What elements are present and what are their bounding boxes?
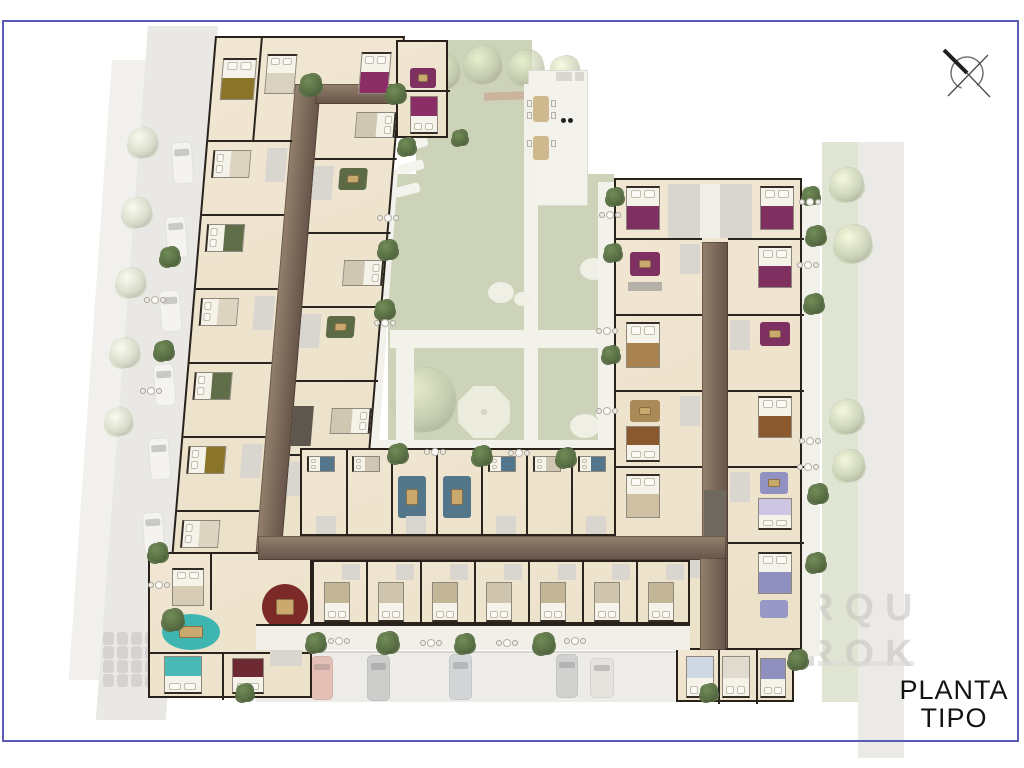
bistro-table [799, 461, 817, 473]
bed [307, 456, 335, 472]
plan-title-line1: PLANTA [894, 676, 1014, 704]
bed [342, 260, 384, 286]
tree-icon [604, 244, 622, 262]
tree-icon [606, 188, 624, 206]
block [366, 562, 368, 626]
rug [630, 400, 660, 422]
tree-icon [830, 400, 864, 434]
block [728, 238, 804, 240]
rug [410, 68, 436, 88]
block [202, 214, 284, 216]
block [575, 72, 584, 81]
block [636, 562, 638, 626]
bed [432, 582, 458, 622]
car [148, 437, 172, 480]
block [316, 516, 336, 534]
block [527, 100, 532, 107]
block [189, 362, 271, 364]
bottom-unit-band [256, 560, 690, 624]
tree-icon [388, 444, 408, 464]
block [308, 232, 390, 234]
dining-table [533, 96, 549, 122]
tree-icon [556, 448, 576, 468]
block [728, 390, 804, 392]
tree-icon [806, 226, 826, 246]
bistro-table [510, 447, 528, 459]
block [210, 554, 212, 610]
bed [758, 396, 792, 438]
blob [527, 352, 536, 361]
block [680, 396, 700, 426]
rug [398, 476, 426, 518]
tree-icon [300, 74, 322, 96]
block [504, 564, 522, 580]
car [367, 655, 390, 701]
bed [172, 568, 204, 606]
bistro-table [598, 405, 616, 417]
tree-icon [378, 240, 398, 260]
block [666, 564, 684, 580]
bistro-table [566, 635, 584, 647]
rug [760, 322, 790, 346]
north-compass-icon [936, 40, 998, 102]
dining-table [533, 136, 549, 160]
block [391, 450, 393, 538]
block [265, 148, 288, 182]
block [730, 320, 750, 350]
grill-dot [561, 118, 566, 123]
bed [722, 656, 750, 698]
rug [326, 316, 356, 338]
bed [758, 498, 792, 530]
bed [578, 456, 606, 472]
bed [758, 246, 792, 288]
block [474, 562, 476, 626]
tree-icon [452, 130, 468, 146]
corridor-stub [700, 558, 726, 650]
bed [164, 656, 202, 694]
block [728, 466, 804, 468]
stair-block [291, 406, 314, 446]
block [718, 650, 720, 704]
bistro-table [379, 212, 397, 224]
tree-icon [154, 341, 174, 361]
block [526, 450, 528, 538]
bed [330, 408, 372, 434]
right-wing-extension [676, 648, 794, 702]
car [590, 658, 614, 698]
bed [626, 426, 660, 462]
tree-icon [236, 684, 254, 702]
block [312, 562, 314, 626]
tree-icon [122, 198, 152, 228]
block [616, 390, 702, 392]
block [299, 314, 322, 348]
tree-icon [808, 484, 828, 504]
tree-icon [128, 128, 158, 158]
block [680, 244, 700, 274]
seating-blob [488, 282, 514, 303]
bistro-table [598, 325, 616, 337]
blob [481, 409, 487, 415]
bed [180, 520, 220, 548]
tree-icon [160, 247, 180, 267]
bed [410, 96, 438, 134]
bistro-table [498, 637, 516, 649]
bistro-table [330, 635, 348, 647]
seating-blob [570, 414, 600, 438]
tree-icon [472, 446, 492, 466]
tree-icon [148, 543, 168, 563]
bistro-table [426, 446, 444, 458]
bistro-table [801, 196, 819, 208]
block [315, 158, 397, 160]
bed [626, 186, 660, 230]
block [720, 184, 752, 238]
tree-icon [377, 632, 399, 654]
block [616, 314, 702, 316]
walkway [598, 182, 614, 460]
tree-icon [464, 46, 502, 84]
block [222, 652, 224, 700]
bistro-table [601, 209, 619, 221]
bed [760, 658, 786, 698]
tree-icon [602, 346, 620, 364]
lawn-path [396, 348, 414, 446]
bed [648, 582, 674, 622]
tree-icon [533, 633, 555, 655]
bed [760, 186, 794, 230]
tree-icon [788, 650, 808, 670]
watermark-line1: RQU [806, 586, 923, 632]
block [396, 564, 414, 580]
bed [192, 372, 232, 400]
block [196, 288, 278, 290]
bistro-table [150, 579, 168, 591]
block [450, 564, 468, 580]
block [240, 444, 263, 478]
bistro-table [376, 317, 394, 329]
block [528, 562, 530, 626]
bistro-table [146, 294, 164, 306]
plan-title-line2: TIPO [894, 704, 1014, 732]
corridor-bottom [258, 536, 726, 560]
tree-icon [455, 634, 475, 654]
bed [264, 54, 297, 94]
tree-icon [804, 294, 824, 314]
block [496, 516, 516, 534]
plan-title: PLANTA TIPO [894, 676, 1014, 733]
bed [626, 474, 660, 518]
tree-icon [110, 338, 140, 368]
stair-block [704, 490, 726, 538]
car [311, 656, 333, 700]
block [183, 436, 265, 438]
block [527, 140, 532, 147]
bistro-table [422, 637, 440, 649]
block [551, 140, 556, 147]
block [527, 112, 532, 119]
bed [354, 112, 396, 138]
block [582, 562, 584, 626]
tree-icon [105, 408, 133, 436]
block [668, 184, 700, 238]
rug [760, 472, 788, 494]
tree-icon [806, 553, 826, 573]
block [311, 166, 334, 200]
rug [630, 252, 660, 276]
block [177, 510, 259, 512]
seating-blob [514, 292, 531, 306]
block [728, 542, 804, 544]
block [256, 624, 690, 626]
block [728, 314, 804, 316]
block [616, 466, 702, 468]
car [449, 654, 472, 700]
car [556, 654, 578, 698]
bed [205, 224, 245, 252]
lawn-path [390, 330, 614, 348]
block [436, 450, 438, 538]
watermark-line2: ROK [806, 632, 923, 678]
block [616, 238, 702, 240]
bed [324, 582, 350, 622]
bed [486, 582, 512, 622]
block [730, 472, 750, 502]
bed [758, 552, 792, 594]
tree-icon [386, 84, 406, 104]
red-mark [484, 91, 528, 101]
bed [211, 150, 251, 178]
bed [199, 298, 239, 326]
bistro-table [801, 435, 819, 447]
bed [594, 582, 620, 622]
bed [220, 58, 258, 100]
block [556, 72, 572, 81]
block [558, 564, 576, 580]
block [252, 296, 275, 330]
tree-icon [700, 684, 718, 702]
block [296, 380, 378, 382]
block [406, 516, 426, 534]
tree-icon [162, 609, 184, 631]
floor-plan-sheet: RQU ROK PLANTA TIPO [0, 0, 1024, 768]
block [756, 650, 758, 704]
tree-icon [834, 225, 872, 263]
grill-dot [568, 118, 573, 123]
balcony-strip [800, 186, 820, 656]
block [302, 306, 384, 308]
tree-icon [306, 633, 326, 653]
bed [626, 322, 660, 368]
block [700, 184, 720, 238]
rug [338, 168, 368, 190]
block [551, 112, 556, 119]
rug [760, 600, 788, 618]
rug [443, 476, 471, 518]
block [346, 450, 348, 538]
bistro-table [799, 259, 817, 271]
block [586, 516, 606, 534]
car [171, 141, 195, 184]
tree-icon [398, 138, 416, 156]
block [612, 564, 630, 580]
block [208, 140, 292, 142]
paver-grid [103, 632, 121, 644]
bed [352, 456, 380, 472]
watermark-tagline [818, 661, 914, 666]
block [551, 100, 556, 107]
bed [540, 582, 566, 622]
bed [378, 582, 404, 622]
bed [186, 446, 226, 474]
sofa [628, 282, 662, 291]
tree-icon [830, 168, 864, 202]
block [342, 564, 360, 580]
tree-icon [116, 268, 146, 298]
tree-icon [833, 450, 865, 482]
bistro-table [142, 385, 160, 397]
block [420, 562, 422, 626]
